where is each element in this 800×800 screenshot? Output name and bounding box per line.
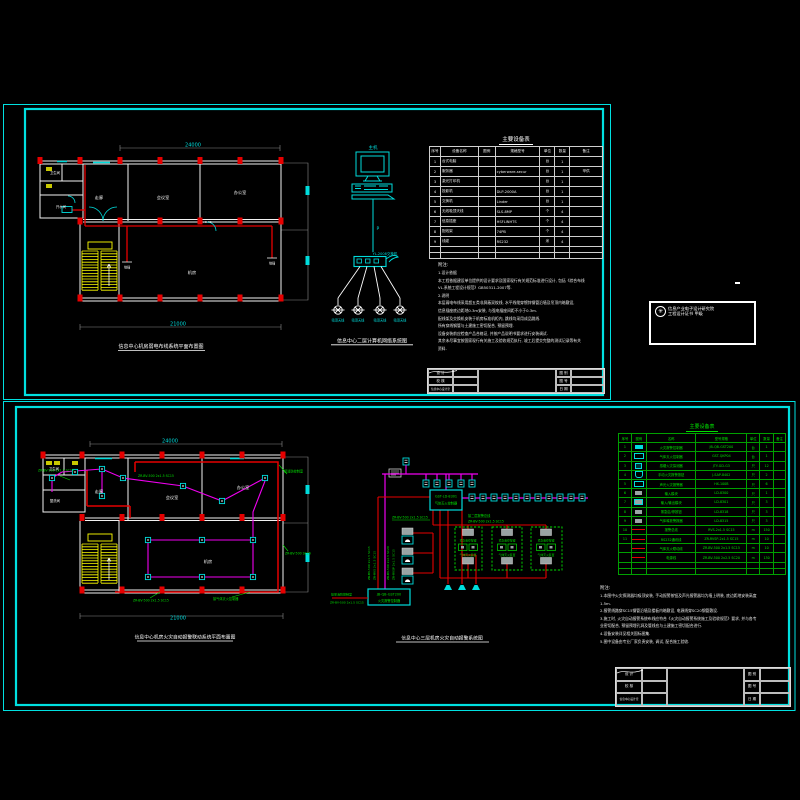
red-conduit: [72, 165, 272, 262]
legend-symbol-icon: [632, 529, 645, 530]
note-line: 2.报警线路穿SC15钢管沿墙及楼板内暗敷设, 电源线穿SC20钢管敷设.: [600, 607, 796, 615]
svg-text:卫生间: 卫生间: [50, 170, 61, 175]
wire-tags: ZR-BV-500 2x1.5 SC15 ZR-BV-500 2x1.5 SC1…: [38, 469, 311, 603]
field-blank: [760, 681, 790, 694]
company-stamp: ✳ 信息产业电子设计研究院 工程设计证书 甲级: [649, 301, 756, 345]
note-line: 业密切配合, 预留预埋孔洞及管线应与土建施工密切配合进行.: [600, 622, 796, 630]
svg-text:ZR-BV-500 2x1.5 SC15: ZR-BV-500 2x1.5 SC15: [133, 599, 169, 603]
fixture: [46, 461, 52, 465]
legend-symbol-icon: [635, 445, 643, 449]
svg-text:吸顶天线: 吸顶天线: [374, 318, 388, 323]
svg-text:机房: 机房: [188, 269, 196, 276]
svg-text:办公室: 办公室: [237, 484, 250, 491]
table-row: 6 输入模块LD-8300只1: [619, 489, 786, 498]
room-labels: 走廊 会议室 办公室 机房 盥洗间 卫生间: [49, 466, 249, 565]
note-line: 本工程依据建设单位提供的设计要求及国家现行有关规范标准进行设计, 包括《综合布线: [438, 277, 610, 285]
svg-text:地插: 地插: [269, 261, 276, 266]
svg-text:接消防控制室: 接消防控制室: [284, 469, 303, 474]
cable-tag: ZR-BV-500 2x1.5 SC15: [392, 516, 428, 520]
drop-cables: [338, 267, 400, 299]
host-label: 主机: [369, 144, 378, 151]
table-row: 4 手动火灾报警按钮J-SAP-8402只2: [619, 470, 786, 479]
legend-symbol-icon: [635, 463, 642, 469]
alarm-bell-icons: [444, 585, 480, 590]
field-number: 图 号: [556, 377, 571, 385]
svg-text:吸顶天线: 吸顶天线: [332, 318, 346, 323]
svg-text:气体灭火控制器: 气体灭火控制器: [435, 501, 458, 506]
floor-plan-fire-alarm: ZR-BV-500 2x1.5 SC15 ZR-BV-500 2x1.5 SC1…: [38, 439, 311, 642]
svg-text:ZR-BV-500 2x2.5 SC20: ZR-BV-500 2x2.5 SC20: [386, 546, 390, 580]
title-block-1: 设 计 校 核 信息中心设计室 图 别 图 号 日 期: [427, 368, 605, 394]
field-type: 图 别: [556, 369, 571, 377]
note-line: 1.设计依据: [438, 269, 610, 277]
table-row: 气体灭火联动线ZR-BV-500 2x1.5 SC15m10: [619, 544, 786, 553]
fixture: [46, 184, 52, 188]
field-blank: [571, 377, 604, 385]
legend-symbol-icon: [635, 471, 643, 478]
network-title: 信息中心二层计算机网络系统图: [337, 338, 407, 345]
ceiling-antenna-icons: [332, 298, 407, 314]
table-row: 10 报警总线RVS-2x1.5 SC15m150: [619, 525, 786, 534]
table-row: 3 感烟火灾探测器JTY-GD-G3只12: [619, 461, 786, 470]
floor-plan-weak-current: 走廊 会议室 办公室 机房 开水间 卫生间 地插 地插 +0.30 24000 …: [38, 143, 310, 351]
field-blank: [642, 693, 667, 706]
note-line: 1.本图中火灾探测器均吸顶安装, 手动报警按钮及声光报警器均为墙上明装, 底边距…: [600, 592, 796, 600]
svg-text:紧急启停按钮: 紧急启停按钮: [460, 539, 477, 543]
fixture: [72, 461, 78, 465]
system-title: 信息中心三层机房火灾自动报警系统图: [401, 635, 483, 642]
table-row: 7 输入/输出模块LD-8301只3: [619, 498, 786, 507]
table-row: 5 声光火灾报警器HX-100B只6: [619, 479, 786, 488]
signature-cell: [571, 369, 604, 377]
svg-text:ZR-BV-500 2x1.5 SC15: ZR-BV-500 2x1.5 SC15: [367, 546, 371, 580]
field-blank: [571, 385, 604, 393]
legend-symbol-icon: [632, 557, 645, 558]
svg-text:气体灭火装置: 气体灭火装置: [538, 553, 555, 557]
cable-label: P: [377, 226, 380, 232]
table-row: 1台式电脑台1: [430, 157, 603, 167]
table-row: 5交换机Linder台1: [430, 197, 603, 207]
svg-text:机房: 机房: [204, 558, 212, 565]
cursor-mark: [735, 282, 740, 284]
note-line: 所有穿线钢管与土建施工密切配合, 预留预埋.: [438, 322, 610, 330]
feed-label: ZR-BV-500 2x1.5 SC15: [330, 601, 364, 605]
wall-accents: [57, 162, 110, 163]
svg-text:吸顶天线: 吸顶天线: [352, 318, 366, 323]
legend-symbol-icon: [634, 499, 643, 505]
table-row: 电源线ZR-BV-500 2x2.5 SC20m130: [619, 553, 786, 562]
legend-symbol-icon: [632, 548, 645, 549]
network-diagram: 主机 P YL-2008交换机 吸顶天线 吸顶天线 吸顶天线 吸顶天线: [331, 144, 413, 345]
svg-text:会议室: 会议室: [166, 494, 179, 501]
notes-1: 附注: 1.设计依据 本工程依据建设单位提供的设计要求及国家现行有关规范标准进行…: [438, 262, 610, 353]
table-row: 1 火灾报警控制器JB-QB-GST200台1: [619, 443, 786, 452]
fire-controller-box: JB-QB-GST200 火灾报警控制器: [368, 589, 410, 605]
note-line: 1.5m.: [600, 600, 796, 608]
svg-text:ZR-BV-500 SC15: ZR-BV-500 SC15: [285, 552, 311, 556]
note-line: 信息插座底边距地0.3m安装, 与强电插座间距不小于0.3m.: [438, 307, 610, 315]
field-check: 校 核: [428, 377, 453, 385]
drawing-name-cell: [667, 668, 744, 706]
note-line: VL.系统工程设计规范》GB50311-2007等.: [438, 284, 610, 292]
legend-symbol-icon: [632, 539, 645, 540]
svg-text:ZR-RVSP 2x1.5 SC15: ZR-RVSP 2x1.5 SC15: [392, 549, 396, 580]
company-name: 信息产业电子设计研究院 工程设计证书 甲级: [668, 306, 714, 316]
table-row: 2 气体灭火控制器GST-QKP04台1: [619, 452, 786, 461]
table-row: 11 RS232通讯线ZR-RVSP-2x1.5 SC15m10: [619, 535, 786, 544]
window-mark: [306, 256, 310, 265]
cad-canvas: 走廊 会议室 办公室 机房 开水间 卫生间 地插 地插 +0.30 24000 …: [0, 0, 800, 800]
notes-label: 附注:: [438, 262, 610, 268]
svg-text:+0.30: +0.30: [202, 220, 211, 224]
field-blank: [453, 377, 478, 385]
field-date: 日 期: [744, 693, 760, 706]
staircase: [82, 242, 117, 290]
note-line: 4.设备安装详见相关国标图集.: [600, 630, 796, 638]
svg-text:21000: 21000: [170, 322, 186, 328]
note-line: 本层弱电布线采用超五类非屏蔽双绞线, 水平线缆穿镀锌钢管沿墙及吊顶内暗敷设,: [438, 299, 610, 307]
field-blank: [642, 668, 667, 681]
svg-text:JB-QB-GST200: JB-QB-GST200: [376, 593, 401, 597]
notes-2: 附注: 1.本图中火灾探测器均吸顶安装, 手动报警按钮及声光报警器均为墙上明装,…: [600, 585, 796, 645]
svg-text:走廊: 走廊: [95, 488, 103, 495]
gas-panel-box: GST-LD-8301 气体灭火控制器: [430, 490, 462, 510]
table1-title: 主要设备表: [429, 135, 603, 145]
field-check: 校 核: [616, 681, 642, 694]
title-block-2: 设 计 校 核 信息中心设计室 图 别 图 号 日 期: [615, 667, 791, 707]
table-row: 2服务器cyberware-secur台1甲供: [430, 167, 603, 177]
dim-labels: 24000 21000: [162, 439, 186, 622]
table-row: 9线缆RS232米4: [430, 237, 603, 247]
vertical-cable-tags: ZR-BV-500 2x1.5 SC15 ZR-RVS 2x1.5 SC15 Z…: [367, 546, 396, 580]
field-dept: 信息中心设计室: [428, 385, 453, 393]
drawing-name-cell: [478, 369, 556, 393]
svg-text:紧急启停按钮: 紧急启停按钮: [538, 539, 555, 543]
legend-symbol-icon: [635, 491, 642, 495]
fixture: [54, 461, 60, 465]
svg-text:地插: 地插: [124, 265, 131, 270]
svg-text:24000: 24000: [185, 143, 201, 149]
dimension-lines: [80, 145, 308, 330]
legend-symbol-icon: [635, 510, 642, 514]
table1-header: 序号设备名称图例规格型号单位数量备注: [430, 147, 603, 157]
sounder-strobe-pairs: [402, 528, 413, 584]
equipment-table-1: 主要设备表 序号设备名称图例规格型号单位数量备注 1台式电脑台1 2服务器cyb…: [429, 135, 603, 259]
table-row: 8配线架74PB个4: [430, 227, 603, 237]
legend-symbol-icon: [634, 453, 644, 459]
field-dept: 信息中心设计室: [616, 693, 642, 706]
window-mark: [306, 485, 310, 494]
field-number: 图 号: [744, 681, 760, 694]
outlet-ticks: [122, 258, 277, 262]
control-wiring: [378, 497, 546, 589]
svg-text:ZR-RVS 2x1.5 SC15: ZR-RVS 2x1.5 SC15: [373, 551, 377, 580]
plan2-title: 信息中心机房火灾自动报警联动系统平面布置图: [135, 634, 236, 641]
bus-label: ZR-BV-500 2x1.5 SC15: [468, 520, 504, 524]
device-box: [403, 458, 409, 465]
svg-text:办公室: 办公室: [234, 189, 247, 196]
note-line: 其余未尽事宜按国家现行有关施工及验收规范执行, 竣工后提交完整的测试记录等有关: [438, 337, 610, 345]
legend-symbol-icon: [634, 481, 644, 487]
table-row: 3激光打印机台1: [430, 177, 603, 187]
svg-text:气体灭火装置: 气体灭火装置: [499, 553, 516, 557]
red-conduit: [87, 462, 278, 592]
svg-text:火灾报警控制器: 火灾报警控制器: [378, 598, 401, 603]
company-logo-icon: ✳: [655, 306, 666, 317]
svg-text:21000: 21000: [170, 616, 186, 622]
table-row: 9 气体释放警报器LD-8315只3: [619, 516, 786, 525]
note-line: 资料.: [438, 345, 610, 353]
gas-protection-zones: 紧急启停按钮 气体灭火装置 紧急启停按钮 气体灭火装置 紧急启停按钮: [455, 527, 562, 570]
svg-text:会议室: 会议室: [157, 194, 170, 201]
table2-title: 主要设备表: [618, 423, 786, 432]
switch-icon: [354, 255, 398, 266]
svg-text:开水间: 开水间: [56, 204, 67, 209]
svg-text:GST-LD-8301: GST-LD-8301: [435, 495, 457, 499]
table-row: 4投影机DLP-2000A台1: [430, 187, 603, 197]
plan1-title: 信息中心机房弱电布线系统平面布置图: [118, 343, 203, 350]
staircase: [82, 534, 117, 583]
svg-text:气体灭火装置: 气体灭火装置: [460, 553, 477, 557]
note-line: 2.说明: [438, 292, 610, 300]
table-row: [619, 568, 786, 574]
table-row: 8 紧急启/停按钮LD-8318只3: [619, 507, 786, 516]
field-date: 日 期: [556, 385, 571, 393]
svg-text:盥洗间: 盥洗间: [50, 498, 61, 503]
fire-alarm-system-diagram: GST-LD-8301 气体灭火控制器 ZR-BV-500 2x1.5 SC15…: [330, 458, 588, 642]
table-row: [430, 253, 603, 259]
walls: [40, 161, 281, 301]
note-line: 设备安装前应检查产品合格证, 并按产品说明书要求进行安装调试.: [438, 330, 610, 338]
window-mark: [306, 186, 310, 195]
table-row: 6无线吸顶天线SLS-8MP个4: [430, 207, 603, 217]
legend-symbol-icon: [635, 519, 642, 523]
signature-cell: [760, 668, 790, 681]
equipment-table-2: 主要设备表 序号图例名称型号规格单位数量备注 1 火灾报警控制器JB-QB-GS…: [618, 423, 786, 575]
table-row: 7信息插座HSFLINHTS个4: [430, 217, 603, 227]
field-blank: [642, 681, 667, 694]
bus-label: 接二层报警总线: [468, 513, 491, 518]
host-computer-icon: [352, 152, 394, 199]
field-blank: [453, 385, 478, 393]
feed-label: 接至消防控制室: [331, 592, 352, 597]
note-line: 3.施工时, 火灾自动报警系统布线应符合《火灾自动报警系统施工及验收规范》要求,…: [600, 615, 796, 623]
svg-text:卫生间: 卫生间: [49, 466, 60, 471]
note-line: 5.图中设备由专业厂家负责安装, 调试, 配合施工验收.: [600, 638, 796, 646]
dim-labels: 24000 21000: [170, 143, 201, 328]
structural-columns: [38, 157, 284, 302]
svg-text:吸顶天线: 吸顶天线: [394, 318, 408, 323]
svg-text:接气体灭火控制器: 接气体灭火控制器: [213, 596, 239, 601]
field-type: 图 别: [744, 668, 760, 681]
notes-label: 附注:: [600, 585, 796, 591]
table2-header: 序号图例名称型号规格单位数量备注: [619, 434, 786, 443]
antenna-labels: 吸顶天线 吸顶天线 吸顶天线 吸顶天线: [332, 318, 408, 323]
svg-text:走廊: 走廊: [95, 194, 103, 201]
svg-text:24000: 24000: [162, 439, 178, 445]
svg-text:ZR-BV-500 2x1.5 SC15: ZR-BV-500 2x1.5 SC15: [138, 474, 174, 478]
note-line: 配线架及交换机安装于机房标准机柜内, 跳线均采用成品跳线.: [438, 315, 610, 323]
field-blank: [760, 693, 790, 706]
svg-text:紧急启停按钮: 紧急启停按钮: [499, 539, 516, 543]
